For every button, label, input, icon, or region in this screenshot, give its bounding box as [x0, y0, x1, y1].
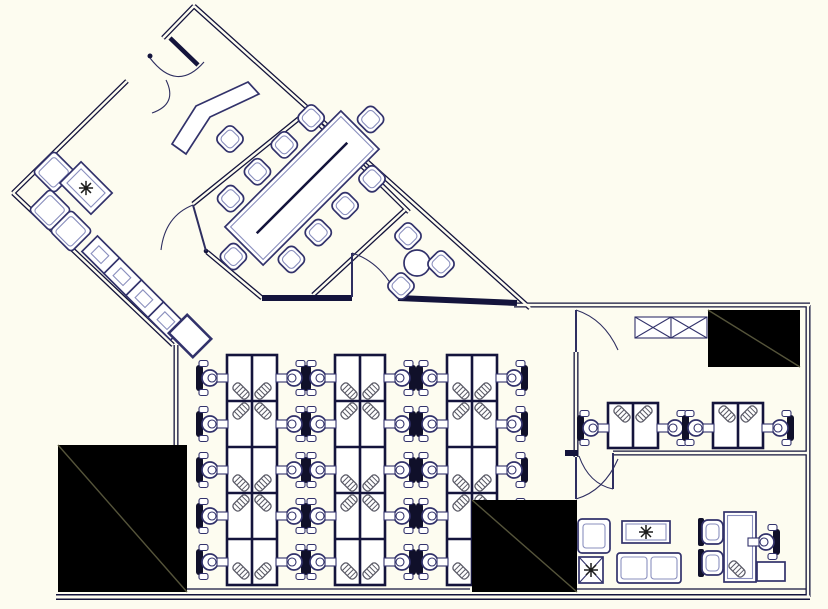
door-hinge-icon: [148, 54, 153, 59]
guest-chair: [698, 549, 723, 577]
guest-chair: [698, 518, 723, 546]
round-table: [404, 250, 430, 276]
credenza: [757, 562, 785, 581]
exec-armchair: [578, 519, 610, 553]
exec-sofa: [617, 553, 681, 583]
floor-plan-canvas: [0, 0, 828, 609]
exec-coffee-table: [622, 521, 670, 543]
plant-icon: [584, 563, 598, 577]
storage-locker-icon: [671, 317, 707, 338]
plant-icon: [639, 525, 653, 539]
floor-plant-pot: [579, 557, 603, 583]
floor-plan-page: [0, 0, 828, 609]
storage-locker-icon: [635, 317, 671, 338]
